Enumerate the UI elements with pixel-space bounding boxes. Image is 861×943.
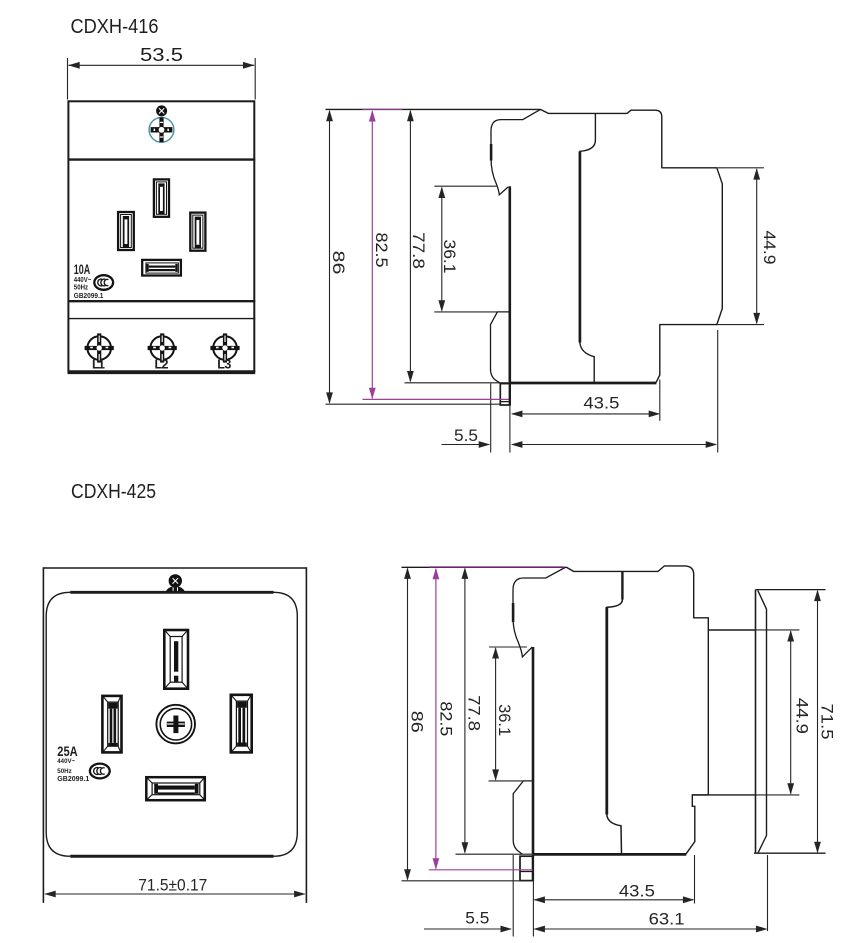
svg-text:L3: L3 xyxy=(217,357,231,371)
svg-text:71.5: 71.5 xyxy=(818,704,837,740)
svg-text:36.1: 36.1 xyxy=(495,704,514,736)
svg-text:GB2099.1: GB2099.1 xyxy=(57,776,89,783)
svg-text:44.9: 44.9 xyxy=(792,698,811,734)
svg-text:86: 86 xyxy=(329,251,348,275)
svg-text:5.5: 5.5 xyxy=(454,426,478,445)
svg-text:5.5: 5.5 xyxy=(465,909,489,928)
svg-text:440V~: 440V~ xyxy=(74,277,91,284)
svg-text:CDXH-416: CDXH-416 xyxy=(71,16,159,38)
svg-text:77.8: 77.8 xyxy=(409,232,428,269)
svg-text:53.5: 53.5 xyxy=(140,45,183,65)
svg-text:L1: L1 xyxy=(92,357,105,371)
svg-text:43.5: 43.5 xyxy=(583,394,619,413)
svg-text:10A: 10A xyxy=(74,262,91,277)
svg-text:86: 86 xyxy=(408,711,427,733)
svg-text:440V~: 440V~ xyxy=(57,758,75,765)
svg-text:63.1: 63.1 xyxy=(649,909,685,928)
svg-text:GB2099.1: GB2099.1 xyxy=(74,291,104,300)
svg-text:77.8: 77.8 xyxy=(465,695,484,731)
svg-text:43.5: 43.5 xyxy=(619,881,655,900)
svg-text:44.9: 44.9 xyxy=(760,231,779,265)
svg-text:82.5: 82.5 xyxy=(372,233,391,268)
svg-text:L2: L2 xyxy=(155,357,169,371)
svg-text:CDXH-425: CDXH-425 xyxy=(71,481,156,503)
svg-text:36.1: 36.1 xyxy=(440,240,459,274)
svg-text:50Hz: 50Hz xyxy=(57,768,72,775)
svg-text:71.5±0.17: 71.5±0.17 xyxy=(138,876,207,895)
svg-text:82.5: 82.5 xyxy=(437,701,456,736)
svg-text:25A: 25A xyxy=(57,744,78,759)
